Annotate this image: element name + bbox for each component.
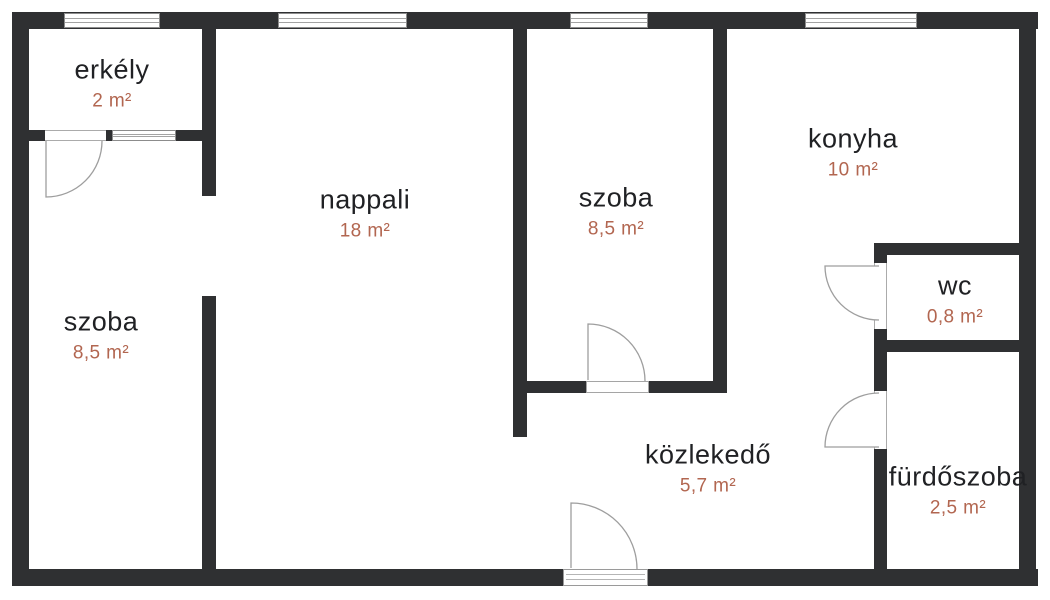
wall-bath-left	[874, 449, 887, 569]
door-swing-szoba	[588, 324, 645, 381]
room-label-kozlekedo: közlekedő 5,7 m²	[645, 440, 771, 495]
door-opening-balcony	[45, 130, 106, 141]
room-name: szoba	[64, 307, 139, 335]
room-name: nappali	[320, 185, 411, 213]
room-name: szoba	[579, 183, 654, 211]
door-opening-bathroom	[874, 391, 887, 449]
entrance-threshold	[563, 569, 648, 586]
door-opening-wc	[874, 263, 887, 329]
wall-wc-left-lower	[874, 329, 887, 391]
room-name: wc	[927, 271, 983, 299]
door-sill-szoba	[586, 381, 649, 393]
wall-szoba2-bottom-left	[513, 381, 586, 393]
door-fill-szoba	[588, 324, 645, 381]
room-label-furdoszoba: fürdőszoba 2,5 m²	[889, 462, 1028, 517]
room-area: 2 m²	[74, 92, 149, 111]
window-symbol-balcony-top	[64, 13, 160, 28]
door-swing-bathroom	[825, 393, 879, 447]
wall-szoba2-konyha	[713, 29, 727, 393]
wall-balcony-right	[202, 29, 216, 196]
room-label-konyha: konyha 10 m²	[808, 124, 898, 179]
room-label-szoba-left: szoba 8,5 m²	[64, 307, 139, 362]
room-name: erkély	[74, 55, 149, 83]
wall-balcony-bottom-right	[176, 130, 216, 141]
room-name: konyha	[808, 124, 898, 152]
room-area: 5,7 m²	[645, 477, 771, 496]
window-symbol-szoba2	[570, 13, 648, 28]
room-area: 18 m²	[320, 222, 411, 241]
room-name: közlekedő	[645, 440, 771, 468]
room-label-erkely: erkély 2 m²	[74, 55, 149, 110]
door-swing-balcony	[46, 141, 102, 197]
room-area: 10 m²	[808, 161, 898, 180]
wall-balcony-bottom-left	[29, 130, 45, 141]
wall-szoba-nappali	[202, 296, 216, 569]
room-area: 0,8 m²	[927, 308, 983, 327]
wall-wc-bottom	[874, 340, 1019, 352]
wall-outer-left	[12, 12, 29, 586]
room-area: 8,5 m²	[579, 220, 654, 239]
window-symbol-konyha	[805, 13, 917, 28]
room-label-nappali: nappali 18 m²	[320, 185, 411, 240]
window-symbol-balcony-bottom	[112, 130, 176, 141]
window-symbol-nappali	[278, 13, 407, 28]
door-fill-bathroom	[825, 393, 879, 447]
room-label-szoba-middle: szoba 8,5 m²	[579, 183, 654, 238]
door-fill-balcony	[46, 141, 102, 197]
room-area: 8,5 m²	[64, 344, 139, 363]
door-swing-wc	[825, 266, 879, 320]
door-fill-entrance	[571, 503, 637, 569]
room-name: fürdőszoba	[889, 462, 1028, 490]
room-area: 2,5 m²	[889, 499, 1028, 518]
door-swing-entrance	[571, 503, 637, 569]
wall-wc-top	[874, 243, 1019, 255]
wall-nappali-szoba2	[513, 29, 527, 437]
door-fill-wc	[825, 266, 879, 320]
floor-plan: erkély 2 m² szoba 8,5 m² nappali 18 m² s…	[0, 0, 1050, 600]
wall-outer-bottom	[12, 569, 1038, 586]
room-label-wc: wc 0,8 m²	[927, 271, 983, 326]
